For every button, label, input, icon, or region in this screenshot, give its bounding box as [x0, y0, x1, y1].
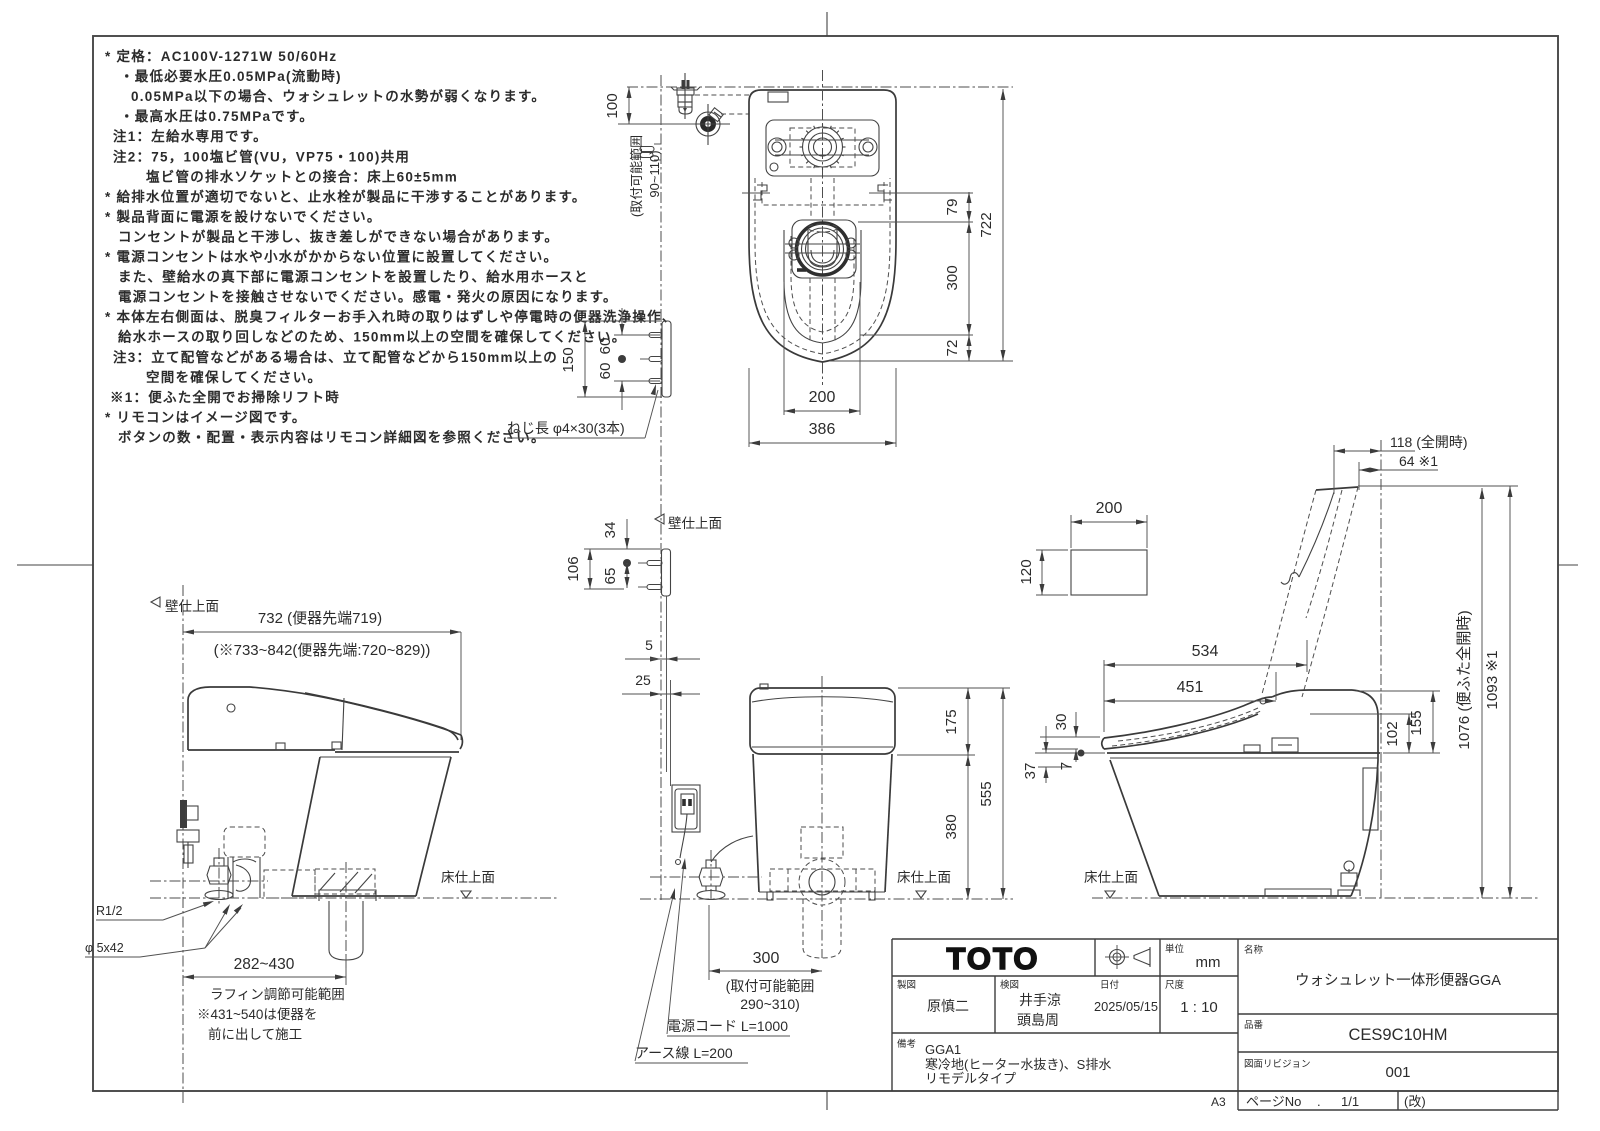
- svg-text:(改): (改): [1404, 1094, 1426, 1109]
- svg-text:ねじ長 φ4×30(3本): ねじ長 φ4×30(3本): [507, 420, 625, 436]
- svg-text:床仕上面: 床仕上面: [1084, 870, 1138, 885]
- svg-text:※431~540は便器を: ※431~540は便器を: [197, 1007, 317, 1022]
- svg-text:72: 72: [944, 340, 961, 357]
- svg-text:備考: 備考: [897, 1038, 916, 1050]
- svg-text:65: 65: [602, 568, 619, 585]
- svg-text:注2：75，100塩ビ管(VU，VP75・100)共用: 注2：75，100塩ビ管(VU，VP75・100)共用: [113, 148, 410, 164]
- svg-text:25: 25: [635, 672, 651, 688]
- svg-text:* 電源コンセントは水や小水がかからない位置に設置してくださ: * 電源コンセントは水や小水がかからない位置に設置してください。: [105, 249, 558, 265]
- svg-text:(※733~842(便器先端:720~829)): (※733~842(便器先端:720~829)): [214, 642, 431, 659]
- svg-text:コンセントが製品と干渉し、抜き差しができない場合があります。: コンセントが製品と干渉し、抜き差しができない場合があります。: [118, 228, 559, 244]
- svg-text:※1：便ふた全開でお掃除リフト時: ※1：便ふた全開でお掃除リフト時: [110, 389, 340, 405]
- svg-text:(取付可能範囲: (取付可能範囲: [629, 135, 644, 217]
- svg-text:図面リビジョン: 図面リビジョン: [1244, 1059, 1311, 1070]
- svg-text:床仕上面: 床仕上面: [897, 870, 951, 885]
- svg-text:102: 102: [1384, 721, 1401, 746]
- svg-text:また、壁給水の真下部に電源コンセントを設置したり、給水用ホー: また、壁給水の真下部に電源コンセントを設置したり、給水用ホースと: [118, 269, 589, 285]
- svg-text:555: 555: [978, 781, 995, 806]
- svg-text:0.05MPa以下の場合、ウォシュレットの水勢が弱くなります: 0.05MPa以下の場合、ウォシュレットの水勢が弱くなります。: [131, 88, 546, 104]
- svg-text:電源コンセントを接触させないでください。感電・発火の原因にな: 電源コンセントを接触させないでください。感電・発火の原因になります。: [118, 289, 618, 305]
- svg-text:150: 150: [560, 347, 577, 372]
- svg-text:001: 001: [1385, 1064, 1410, 1081]
- svg-text:壁仕上面: 壁仕上面: [668, 516, 722, 531]
- svg-text:ウォシュレット一体形便器GGA: ウォシュレット一体形便器GGA: [1295, 972, 1501, 989]
- svg-text:1093 ※1: 1093 ※1: [1484, 650, 1501, 709]
- svg-text:79: 79: [944, 199, 961, 216]
- svg-text:1/1: 1/1: [1341, 1094, 1359, 1109]
- svg-text:106: 106: [565, 556, 582, 581]
- svg-text:380: 380: [943, 814, 960, 839]
- svg-text:mm: mm: [1196, 954, 1221, 971]
- svg-text:前に出して施工: 前に出して施工: [208, 1026, 302, 1042]
- svg-text:A3: A3: [1211, 1095, 1226, 1109]
- svg-text:電源コード L=1000: 電源コード L=1000: [667, 1018, 788, 1034]
- svg-text:732 (便器先端719): 732 (便器先端719): [258, 610, 382, 627]
- svg-text:塩ビ管の排水ソケットとの接合：床上60±5mm: 塩ビ管の排水ソケットとの接合：床上60±5mm: [146, 168, 458, 184]
- svg-text:頭島周: 頭島周: [1017, 1012, 1059, 1028]
- svg-text:290~310): 290~310): [740, 996, 800, 1012]
- svg-text:155: 155: [1408, 710, 1425, 735]
- svg-text:品番: 品番: [1244, 1019, 1264, 1031]
- svg-text:GGA1: GGA1: [925, 1042, 961, 1057]
- svg-text:7: 7: [1058, 762, 1075, 770]
- svg-text:* リモコンはイメージ図です。: * リモコンはイメージ図です。: [105, 410, 307, 425]
- svg-text:64 ※1: 64 ※1: [1399, 453, 1438, 469]
- svg-text:2025/05/15: 2025/05/15: [1094, 999, 1158, 1014]
- svg-text:200: 200: [809, 389, 836, 406]
- svg-text:1076 (便ふた全開時): 1076 (便ふた全開時): [1455, 610, 1473, 749]
- svg-text:φ 5x42: φ 5x42: [85, 941, 124, 955]
- svg-text:床仕上面: 床仕上面: [441, 870, 495, 885]
- svg-text:37: 37: [1022, 763, 1039, 780]
- svg-text:給水ホースの取り回しなどのため、150mm以上の空間を確保し: 給水ホースの取り回しなどのため、150mm以上の空間を確保してください。: [118, 329, 627, 345]
- svg-text:118 (全開時): 118 (全開時): [1390, 434, 1468, 450]
- svg-text:・最低必要水圧0.05MPa(流動時): ・最低必要水圧0.05MPa(流動時): [120, 68, 342, 84]
- svg-text:リモデルタイプ: リモデルタイプ: [925, 1071, 1016, 1086]
- svg-text:日付: 日付: [1100, 980, 1120, 991]
- svg-text:(取付可能範囲: (取付可能範囲: [726, 978, 815, 994]
- svg-text:300: 300: [753, 950, 780, 967]
- svg-text:* 給排水位置が適切でないと、止水栓が製品に干渉することがあ: * 給排水位置が適切でないと、止水栓が製品に干渉することがあります。: [105, 188, 587, 204]
- svg-text:アース線 L=200: アース線 L=200: [635, 1045, 733, 1061]
- svg-text:井手涼: 井手涼: [1019, 992, 1061, 1008]
- svg-text:尺度: 尺度: [1165, 979, 1185, 991]
- svg-text:451: 451: [1177, 679, 1204, 696]
- svg-text:534: 534: [1192, 643, 1219, 660]
- svg-text:5: 5: [645, 637, 653, 653]
- svg-text:名称: 名称: [1244, 944, 1264, 956]
- svg-text:282~430: 282~430: [234, 956, 295, 973]
- svg-text:注3：立て配管などがある場合は、立て配管などから150mm以: 注3：立て配管などがある場合は、立て配管などから150mm以上の: [113, 349, 558, 365]
- svg-text:90~110): 90~110): [647, 150, 662, 197]
- svg-text:TOTO: TOTO: [947, 941, 1040, 976]
- svg-text:寒冷地(ヒーター水抜き)、S排水: 寒冷地(ヒーター水抜き)、S排水: [925, 1057, 1111, 1072]
- svg-text:200: 200: [1096, 500, 1123, 517]
- svg-text:空間を確保してください。: 空間を確保してください。: [146, 369, 322, 385]
- svg-text:175: 175: [943, 709, 960, 734]
- svg-text:1 : 10: 1 : 10: [1180, 999, 1218, 1016]
- svg-text:* 本体左右側面は、脱臭フィルターお手入れ時の取りはずしや停: * 本体左右側面は、脱臭フィルターお手入れ時の取りはずしや停電時の便器洗浄操作、: [105, 309, 677, 325]
- svg-text:30: 30: [1053, 714, 1070, 731]
- svg-text:386: 386: [809, 421, 836, 438]
- svg-text:R1/2: R1/2: [96, 904, 122, 918]
- svg-text:60: 60: [597, 363, 614, 380]
- svg-text:CES9C10HM: CES9C10HM: [1348, 1026, 1447, 1044]
- svg-text:注1：左給水専用です。: 注1：左給水専用です。: [113, 128, 268, 144]
- svg-text:ラフィン調節可能範囲: ラフィン調節可能範囲: [210, 987, 345, 1002]
- svg-text:100: 100: [604, 93, 621, 118]
- svg-text:ページNo: ページNo: [1246, 1094, 1301, 1109]
- svg-text:* 定格：AC100V-1271W 50/60Hz: * 定格：AC100V-1271W 50/60Hz: [105, 48, 337, 64]
- svg-text:壁仕上面: 壁仕上面: [165, 599, 219, 614]
- svg-text:34: 34: [602, 522, 619, 539]
- svg-text:.: .: [1317, 1094, 1321, 1109]
- svg-text:検図: 検図: [1000, 979, 1019, 991]
- svg-text:製図: 製図: [897, 979, 916, 991]
- svg-text:300: 300: [944, 265, 961, 290]
- svg-text:120: 120: [1018, 559, 1035, 584]
- svg-text:・最高水圧は0.75MPaです。: ・最高水圧は0.75MPaです。: [120, 108, 314, 124]
- svg-text:原慎二: 原慎二: [927, 998, 969, 1014]
- svg-text:単位: 単位: [1165, 943, 1185, 955]
- svg-text:ボタンの数・配置・表示内容はリモコン詳細図を参照ください。: ボタンの数・配置・表示内容はリモコン詳細図を参照ください。: [118, 429, 546, 445]
- svg-text:722: 722: [978, 212, 995, 237]
- svg-text:60: 60: [597, 338, 614, 355]
- svg-text:* 製品背面に電源を設けないでください。: * 製品背面に電源を設けないでください。: [105, 208, 382, 224]
